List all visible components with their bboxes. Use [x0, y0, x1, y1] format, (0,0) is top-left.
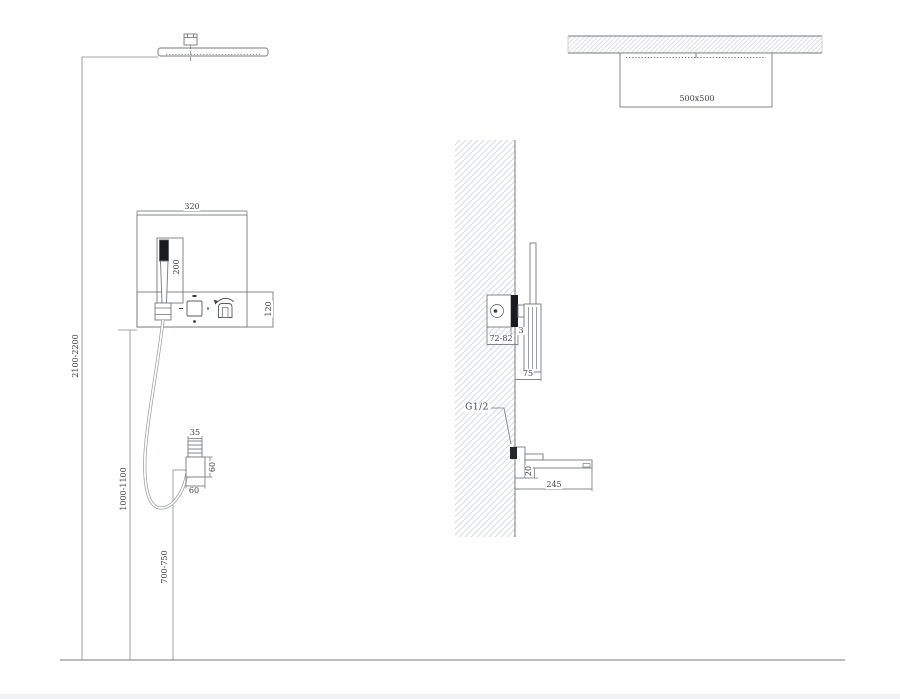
dim-label-panel-to-floor: 1000-1100 [120, 466, 128, 511]
installation-drawing: 320 200 120 2100-2200 1000-1100 700-750 … [0, 0, 900, 699]
drawing-linework [0, 0, 900, 699]
dim-label-outlet-width: 60 [188, 487, 200, 495]
dim-label-holder-projection: 75 [522, 370, 534, 378]
page-edge [0, 694, 900, 699]
dim-label-head-to-floor: 2100-2200 [72, 333, 80, 378]
dim-label-panel-width: 320 [183, 203, 200, 211]
rain-shower-head-side-view [158, 34, 268, 62]
dim-label-spout-body-height: 20 [525, 465, 533, 477]
dim-label-panel-row-height: 120 [265, 300, 273, 317]
ceiling-section [568, 36, 822, 53]
dim-label-outlet-neck-width: 35 [189, 429, 201, 437]
dim-label-valve-recess-depth: 72-82 [488, 335, 513, 343]
dim-label-outlet-height: 60 [209, 461, 217, 473]
thread-size-label: G1/2 [464, 404, 490, 413]
dim-label-head-size: 500x500 [678, 95, 715, 103]
dim-label-handshower-length: 200 [173, 258, 181, 275]
dim-label-spout-reach: 245 [545, 481, 562, 489]
dim-label-outlet-to-floor: 700-750 [161, 549, 169, 584]
hand-shower-side-view [515, 243, 541, 381]
dim-label-trim-plate-thickness: 3 [517, 327, 524, 335]
height-dimension-lines [82, 57, 186, 660]
